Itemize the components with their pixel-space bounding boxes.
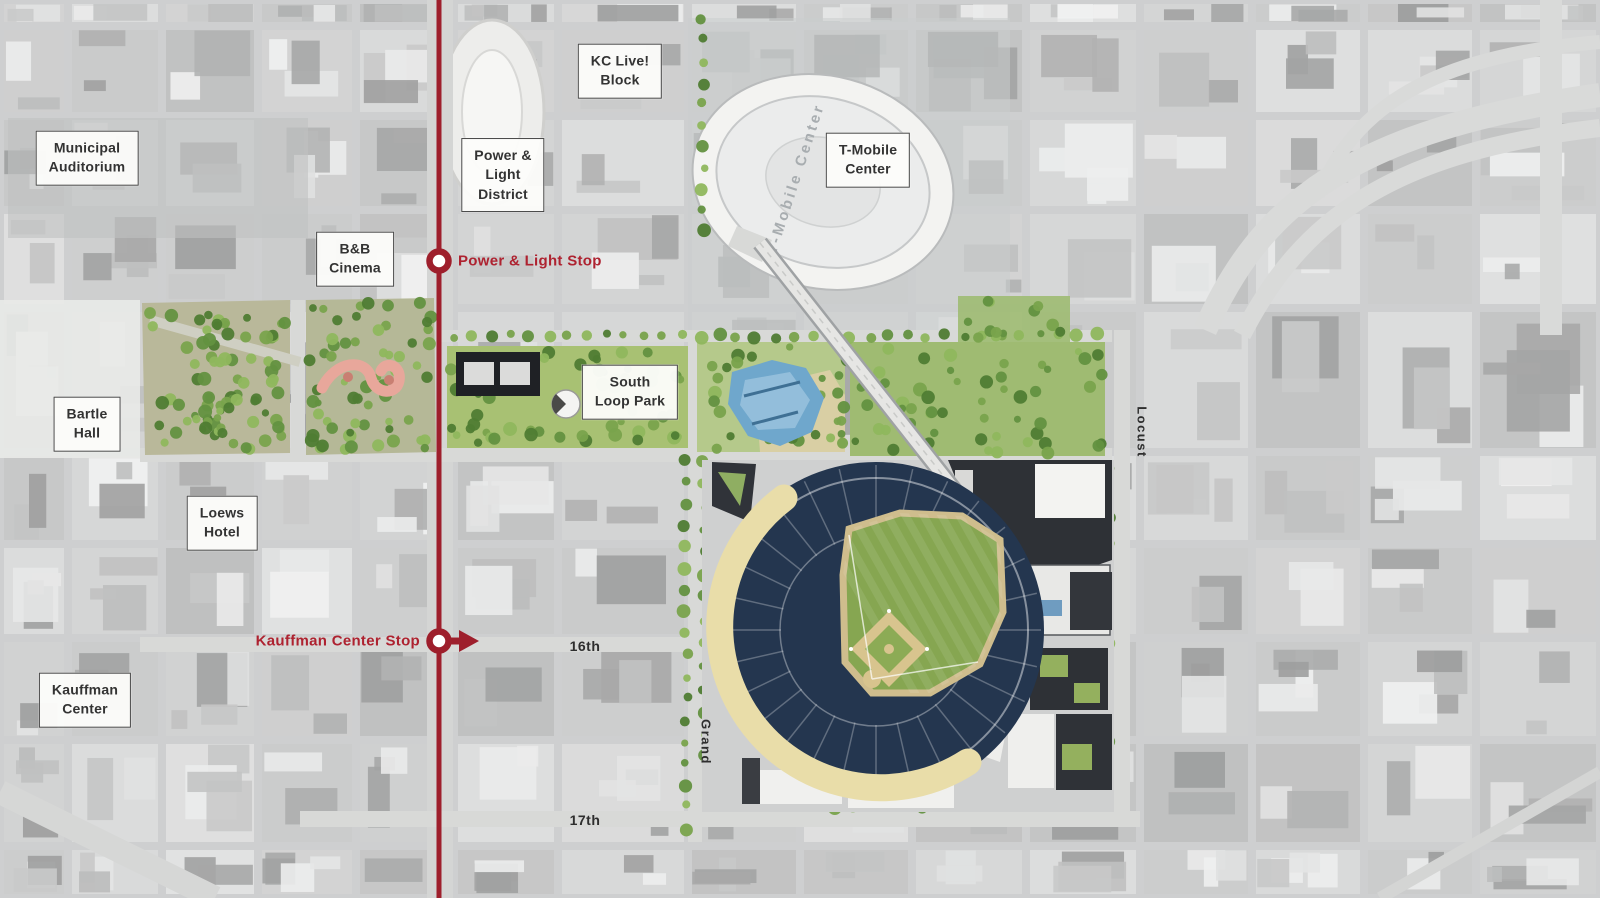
base [849,647,853,651]
building-south-white [1008,714,1054,788]
green-roof [1062,744,1092,770]
stage-panel [500,362,530,385]
label-loews-hotel: Loews Hotel [187,496,258,551]
swirl-dot [384,375,394,385]
label-power-light-district: Power & Light District [461,138,544,212]
locust-street [1114,330,1130,812]
label-kauffman-center: Kauffman Center [39,673,131,728]
building-bottom-dark [742,758,760,804]
label-kc-live-block: KC Live! Block [578,44,662,99]
label-street-16th: 16th [570,638,601,654]
green-roof [1074,683,1100,703]
kauffman-center-stop-marker [430,632,449,651]
park-cross-street [291,300,305,456]
pitchers-mound [884,644,894,654]
label-bb-cinema: B&B Cinema [316,232,394,287]
site-plan-map: T-Mobile Center [0,0,1600,898]
label-street-locust: Locust [1135,406,1150,458]
swirl-dot [343,372,353,382]
map-graphics: T-Mobile Center [0,0,1600,898]
building-east-dark [1070,572,1112,630]
label-t-mobile-center: T-Mobile Center [826,133,910,188]
power-light-stop-marker [430,252,449,271]
green-roof [1040,655,1068,677]
street-17th [300,811,1140,827]
label-kauffman-center-stop: Kauffman Center Stop [256,633,420,650]
label-south-loop-park: South Loop Park [582,365,678,420]
label-power-light-stop: Power & Light Stop [458,253,602,270]
label-bartle-hall: Bartle Hall [54,397,121,452]
stage-panel [464,362,494,385]
base [925,647,929,651]
label-street-grand: Grand [699,719,714,765]
base [887,609,891,613]
label-street-17th: 17th [570,812,601,828]
building-northeast-roof [1035,464,1105,518]
label-municipal-auditorium: Municipal Auditorium [36,131,139,186]
